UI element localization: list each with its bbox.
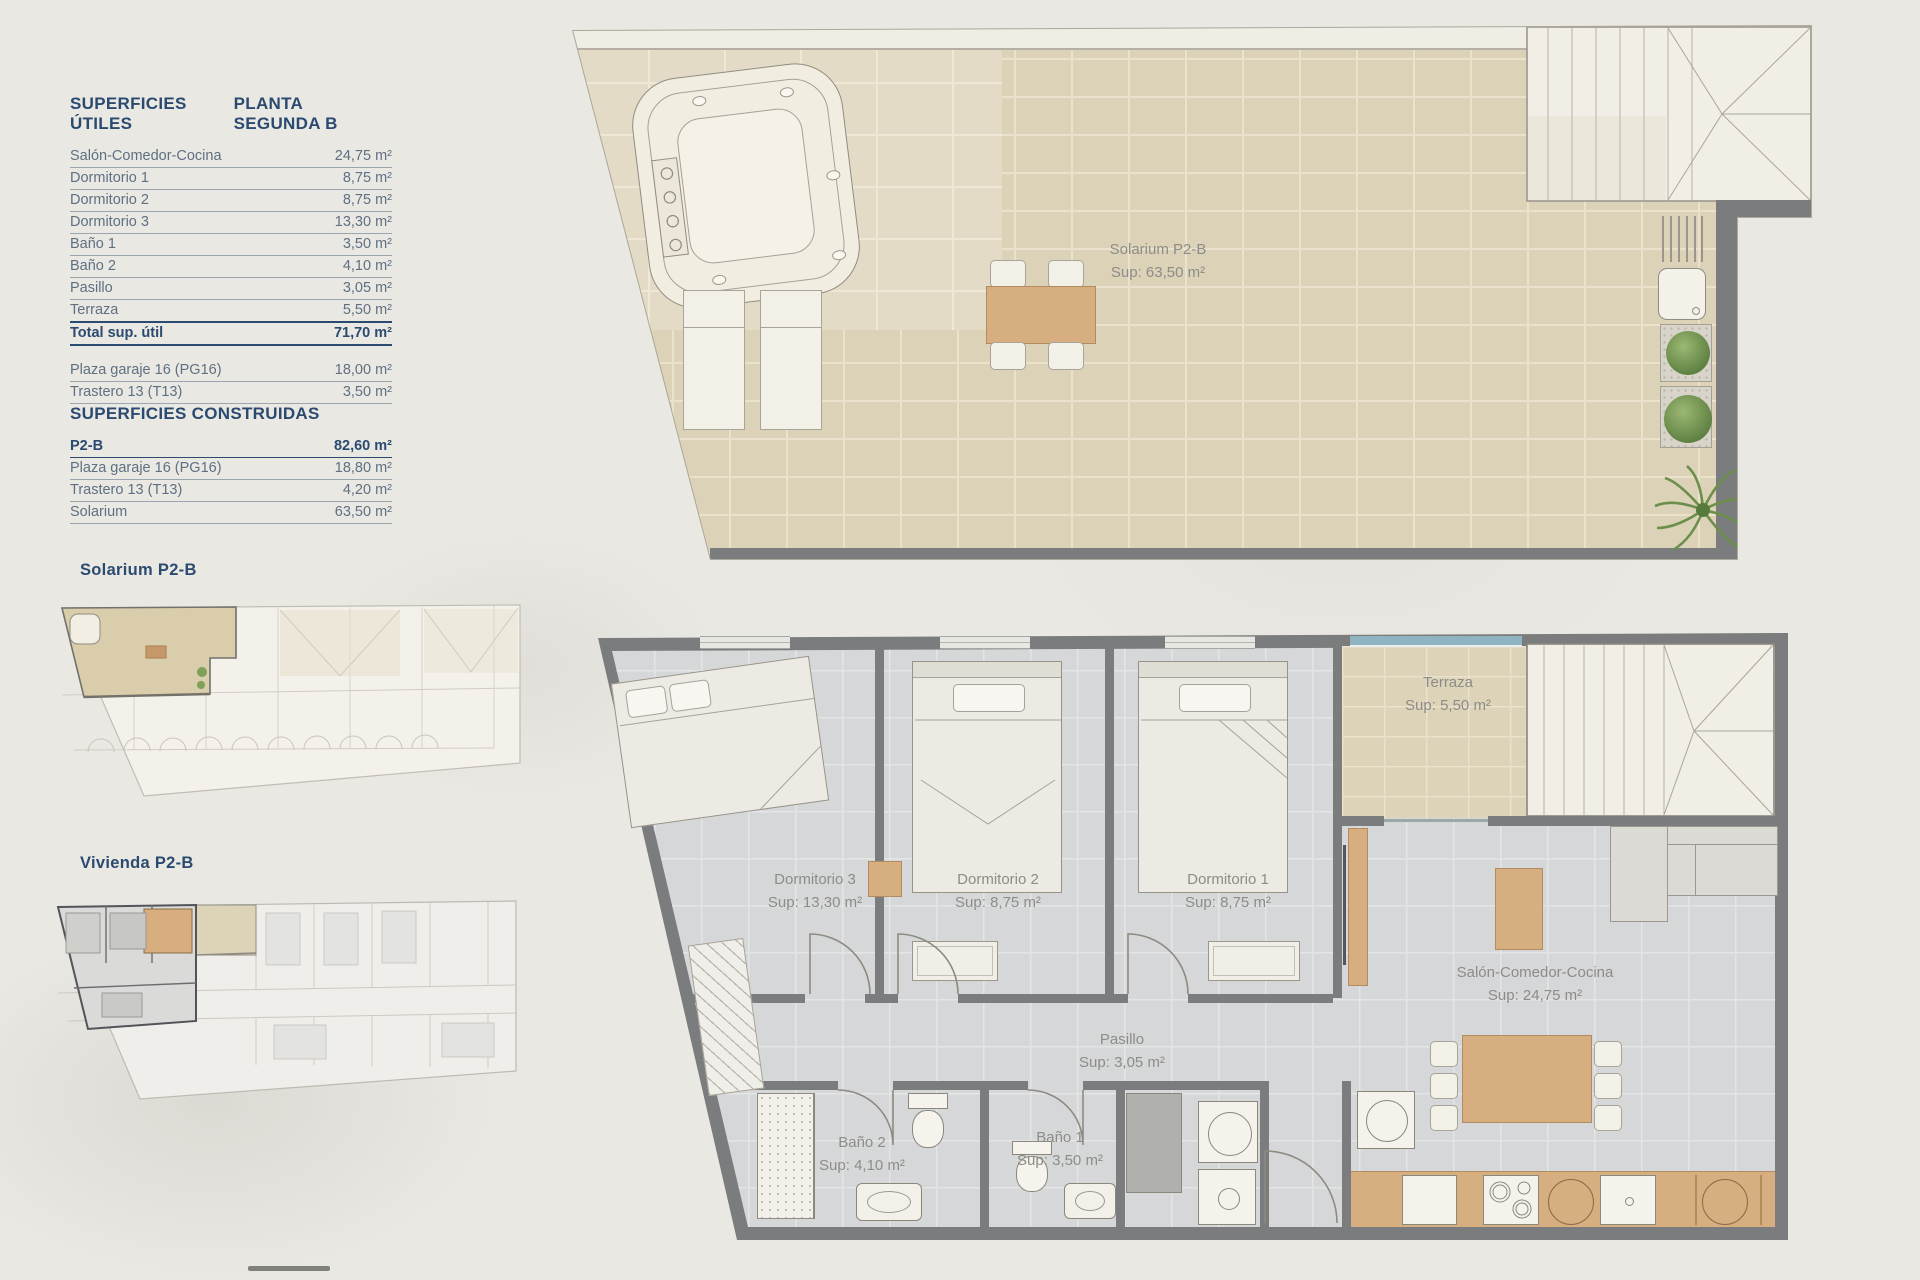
annex-rows: Plaza garaje 16 (PG16)18,00 m² Trastero … (70, 360, 392, 404)
row-label: P2-B (70, 439, 103, 454)
row-value: 3,05 m² (343, 281, 392, 296)
row-label: Baño 2 (70, 259, 116, 274)
table-row: Dormitorio 313,30 m² (70, 212, 392, 234)
row-label: Plaza garaje 16 (PG16) (70, 461, 222, 476)
table-row: Plaza garaje 16 (PG16)18,00 m² (70, 360, 392, 382)
table-row: Salón-Comedor-Cocina24,75 m² (70, 146, 392, 168)
row-label: Trastero 13 (T13) (70, 385, 182, 400)
table-row: Dormitorio 18,75 m² (70, 168, 392, 190)
row-value: 4,10 m² (343, 259, 392, 274)
mini-vivienda-plan (44, 893, 524, 1105)
room-area: Sup: 5,50 m² (1405, 694, 1491, 717)
row-value: 4,20 m² (343, 483, 392, 498)
mini-solarium-title: Solarium P2-B (80, 561, 197, 580)
room-name: Dormitorio 1 (1185, 868, 1271, 891)
table-row: P2-B82,60 m² (70, 436, 392, 458)
room-name: Pasillo (1079, 1028, 1165, 1051)
row-value: 24,75 m² (335, 149, 392, 164)
room-name: Dormitorio 3 (768, 868, 862, 891)
room-label-bano1: Baño 1 Sup: 3,50 m² (1017, 1126, 1103, 1173)
room-label-salon: Salón-Comedor-Cocina Sup: 24,75 m² (1457, 961, 1614, 1008)
solarium-floorplan: Solarium P2-B Sup: 63,50 m² (558, 20, 1816, 572)
room-name: Baño 2 (819, 1131, 905, 1154)
room-area: Sup: 8,75 m² (1185, 891, 1271, 914)
room-label-dormitorio3: Dormitorio 3 Sup: 13,30 m² (768, 868, 862, 915)
row-value: 82,60 m² (334, 439, 392, 454)
row-value: 8,75 m² (343, 193, 392, 208)
table-row: Trastero 13 (T13)4,20 m² (70, 480, 392, 502)
mini-vivienda-title: Vivienda P2-B (80, 854, 194, 873)
planta-title: PLANTA SEGUNDA B (234, 94, 392, 134)
table-row: Baño 24,10 m² (70, 256, 392, 278)
door-arcs (560, 623, 1810, 1255)
table-row: Pasillo3,05 m² (70, 278, 392, 300)
table-row: Plaza garaje 16 (PG16)18,80 m² (70, 458, 392, 480)
room-label-pasillo: Pasillo Sup: 3,05 m² (1079, 1028, 1165, 1075)
room-label-dormitorio1: Dormitorio 1 Sup: 8,75 m² (1185, 868, 1271, 915)
room-label-terraza: Terraza Sup: 5,50 m² (1405, 671, 1491, 718)
room-area: Sup: 4,10 m² (819, 1154, 905, 1177)
row-label: Baño 1 (70, 237, 116, 252)
row-label: Dormitorio 1 (70, 171, 149, 186)
table-title: SUPERFICIES ÚTILES (70, 94, 234, 134)
room-name: Salón-Comedor-Cocina (1457, 961, 1614, 984)
row-label: Plaza garaje 16 (PG16) (70, 363, 222, 378)
table-row: Terraza5,50 m² (70, 300, 392, 322)
table-title: SUPERFICIES CONSTRUIDAS (70, 404, 320, 424)
room-area: Sup: 24,75 m² (1457, 984, 1614, 1007)
row-value: 63,50 m² (335, 505, 392, 520)
row-label: Trastero 13 (T13) (70, 483, 182, 498)
apartment-floorplan: Dormitorio 3 Sup: 13,30 m² Dormitorio 2 … (560, 623, 1810, 1255)
room-label-bano2: Baño 2 Sup: 4,10 m² (819, 1131, 905, 1178)
table-row: Trastero 13 (T13)3,50 m² (70, 382, 392, 404)
row-label: Total sup. útil (70, 326, 163, 341)
row-label: Dormitorio 3 (70, 215, 149, 230)
table-header: SUPERFICIES ÚTILES PLANTA SEGUNDA B (70, 94, 392, 134)
row-value: 8,75 m² (343, 171, 392, 186)
room-label-dormitorio2: Dormitorio 2 Sup: 8,75 m² (955, 868, 1041, 915)
row-label: Dormitorio 2 (70, 193, 149, 208)
room-name: Dormitorio 2 (955, 868, 1041, 891)
row-label: Pasillo (70, 281, 113, 296)
table-row: Baño 13,50 m² (70, 234, 392, 256)
row-value: 71,70 m² (334, 326, 392, 341)
table-row: Solarium63,50 m² (70, 502, 392, 524)
row-label: Salón-Comedor-Cocina (70, 149, 222, 164)
room-area: Sup: 13,30 m² (768, 891, 862, 914)
room-area: Sup: 3,05 m² (1079, 1051, 1165, 1074)
table-row: Dormitorio 28,75 m² (70, 190, 392, 212)
print-smear (248, 1266, 330, 1271)
mini-solarium-plan (44, 600, 524, 805)
room-area: Sup: 3,50 m² (1017, 1149, 1103, 1172)
plan-sheet: SUPERFICIES ÚTILES PLANTA SEGUNDA B Saló… (0, 0, 1920, 1280)
room-name: Baño 1 (1017, 1126, 1103, 1149)
row-value: 18,80 m² (335, 461, 392, 476)
room-area: Sup: 8,75 m² (955, 891, 1041, 914)
table-total-row: Total sup. útil71,70 m² (70, 321, 392, 346)
row-value: 3,50 m² (343, 385, 392, 400)
superficies-utiles-table: SUPERFICIES ÚTILES PLANTA SEGUNDA B Saló… (70, 94, 392, 404)
row-label: Terraza (70, 303, 118, 318)
table-header: SUPERFICIES CONSTRUIDAS (70, 404, 392, 424)
row-value: 5,50 m² (343, 303, 392, 318)
row-label: Solarium (70, 505, 127, 520)
superficies-construidas-table: SUPERFICIES CONSTRUIDAS P2-B82,60 m² Pla… (70, 404, 392, 524)
row-value: 13,30 m² (335, 215, 392, 230)
plan-outline (558, 20, 1816, 572)
room-name: Terraza (1405, 671, 1491, 694)
row-value: 3,50 m² (343, 237, 392, 252)
row-value: 18,00 m² (335, 363, 392, 378)
